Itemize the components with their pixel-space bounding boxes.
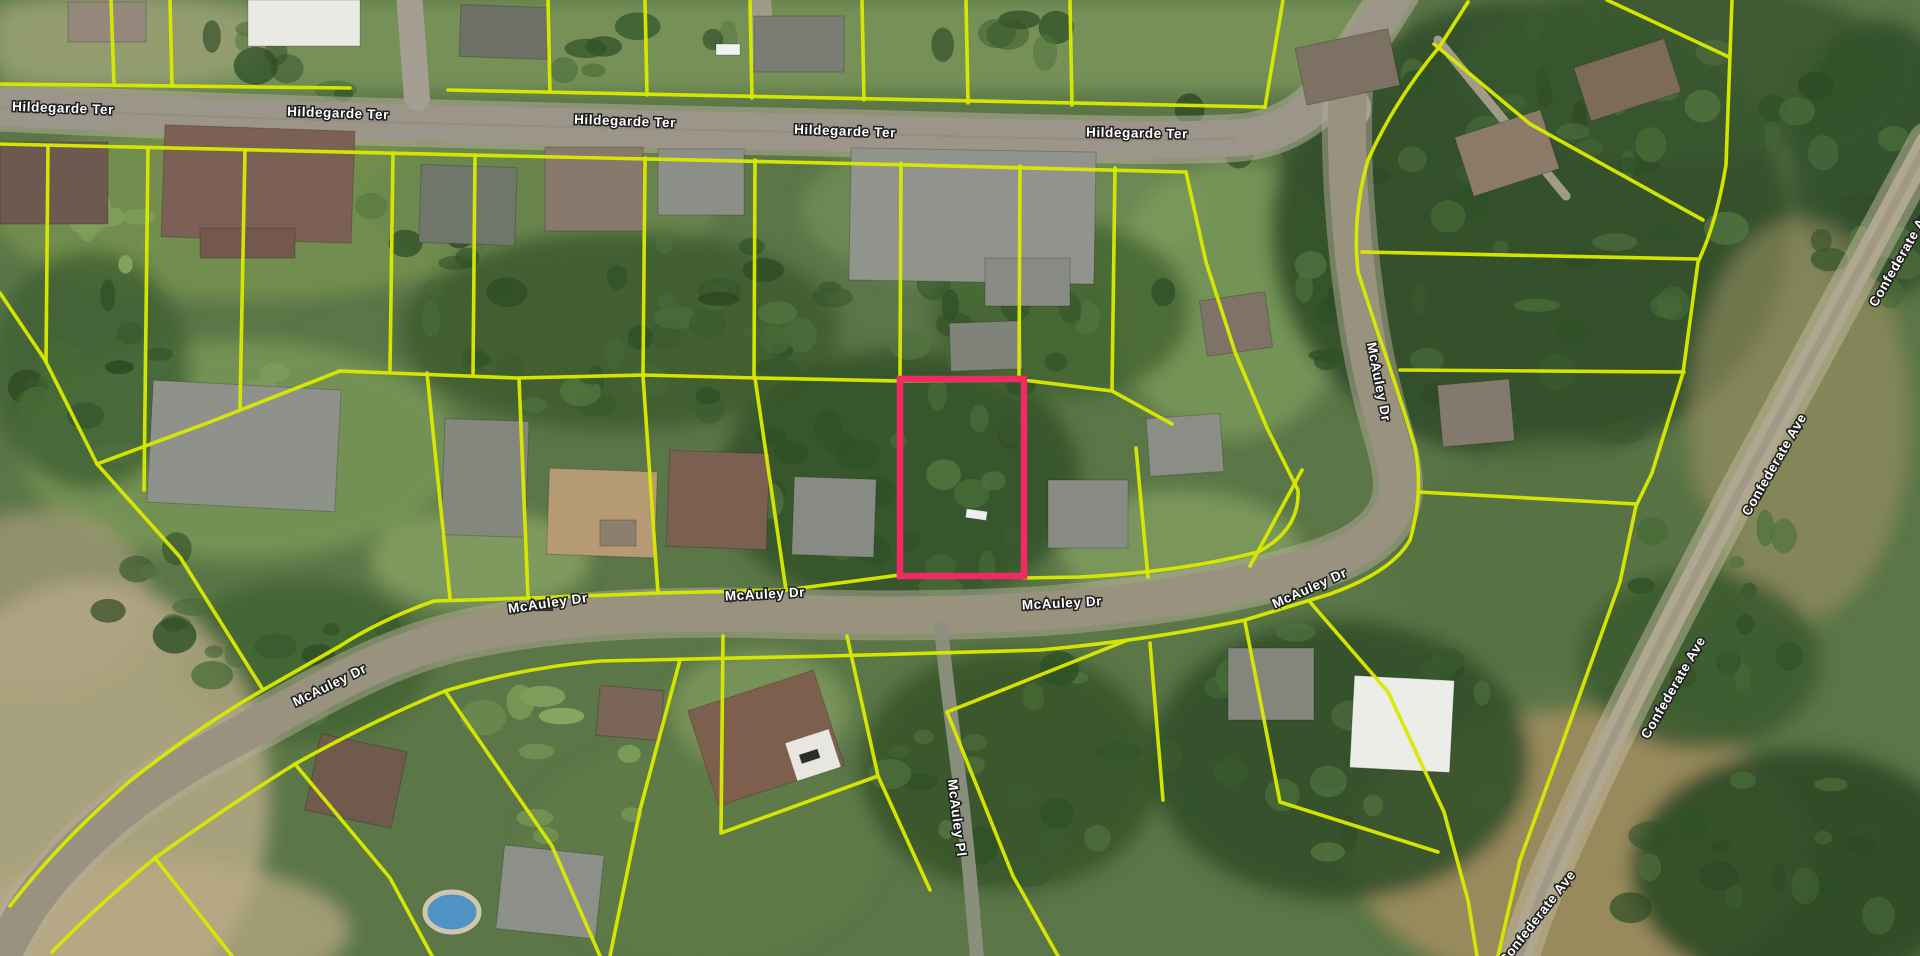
road-label-hildegarde: Hildegarde Ter bbox=[1086, 125, 1188, 142]
map-svg[interactable]: Hildegarde Ter Hildegarde Ter Hildegarde… bbox=[0, 0, 1920, 956]
satellite-map-canvas[interactable]: Hildegarde Ter Hildegarde Ter Hildegarde… bbox=[0, 0, 1920, 956]
road-top-stub bbox=[409, 0, 417, 98]
